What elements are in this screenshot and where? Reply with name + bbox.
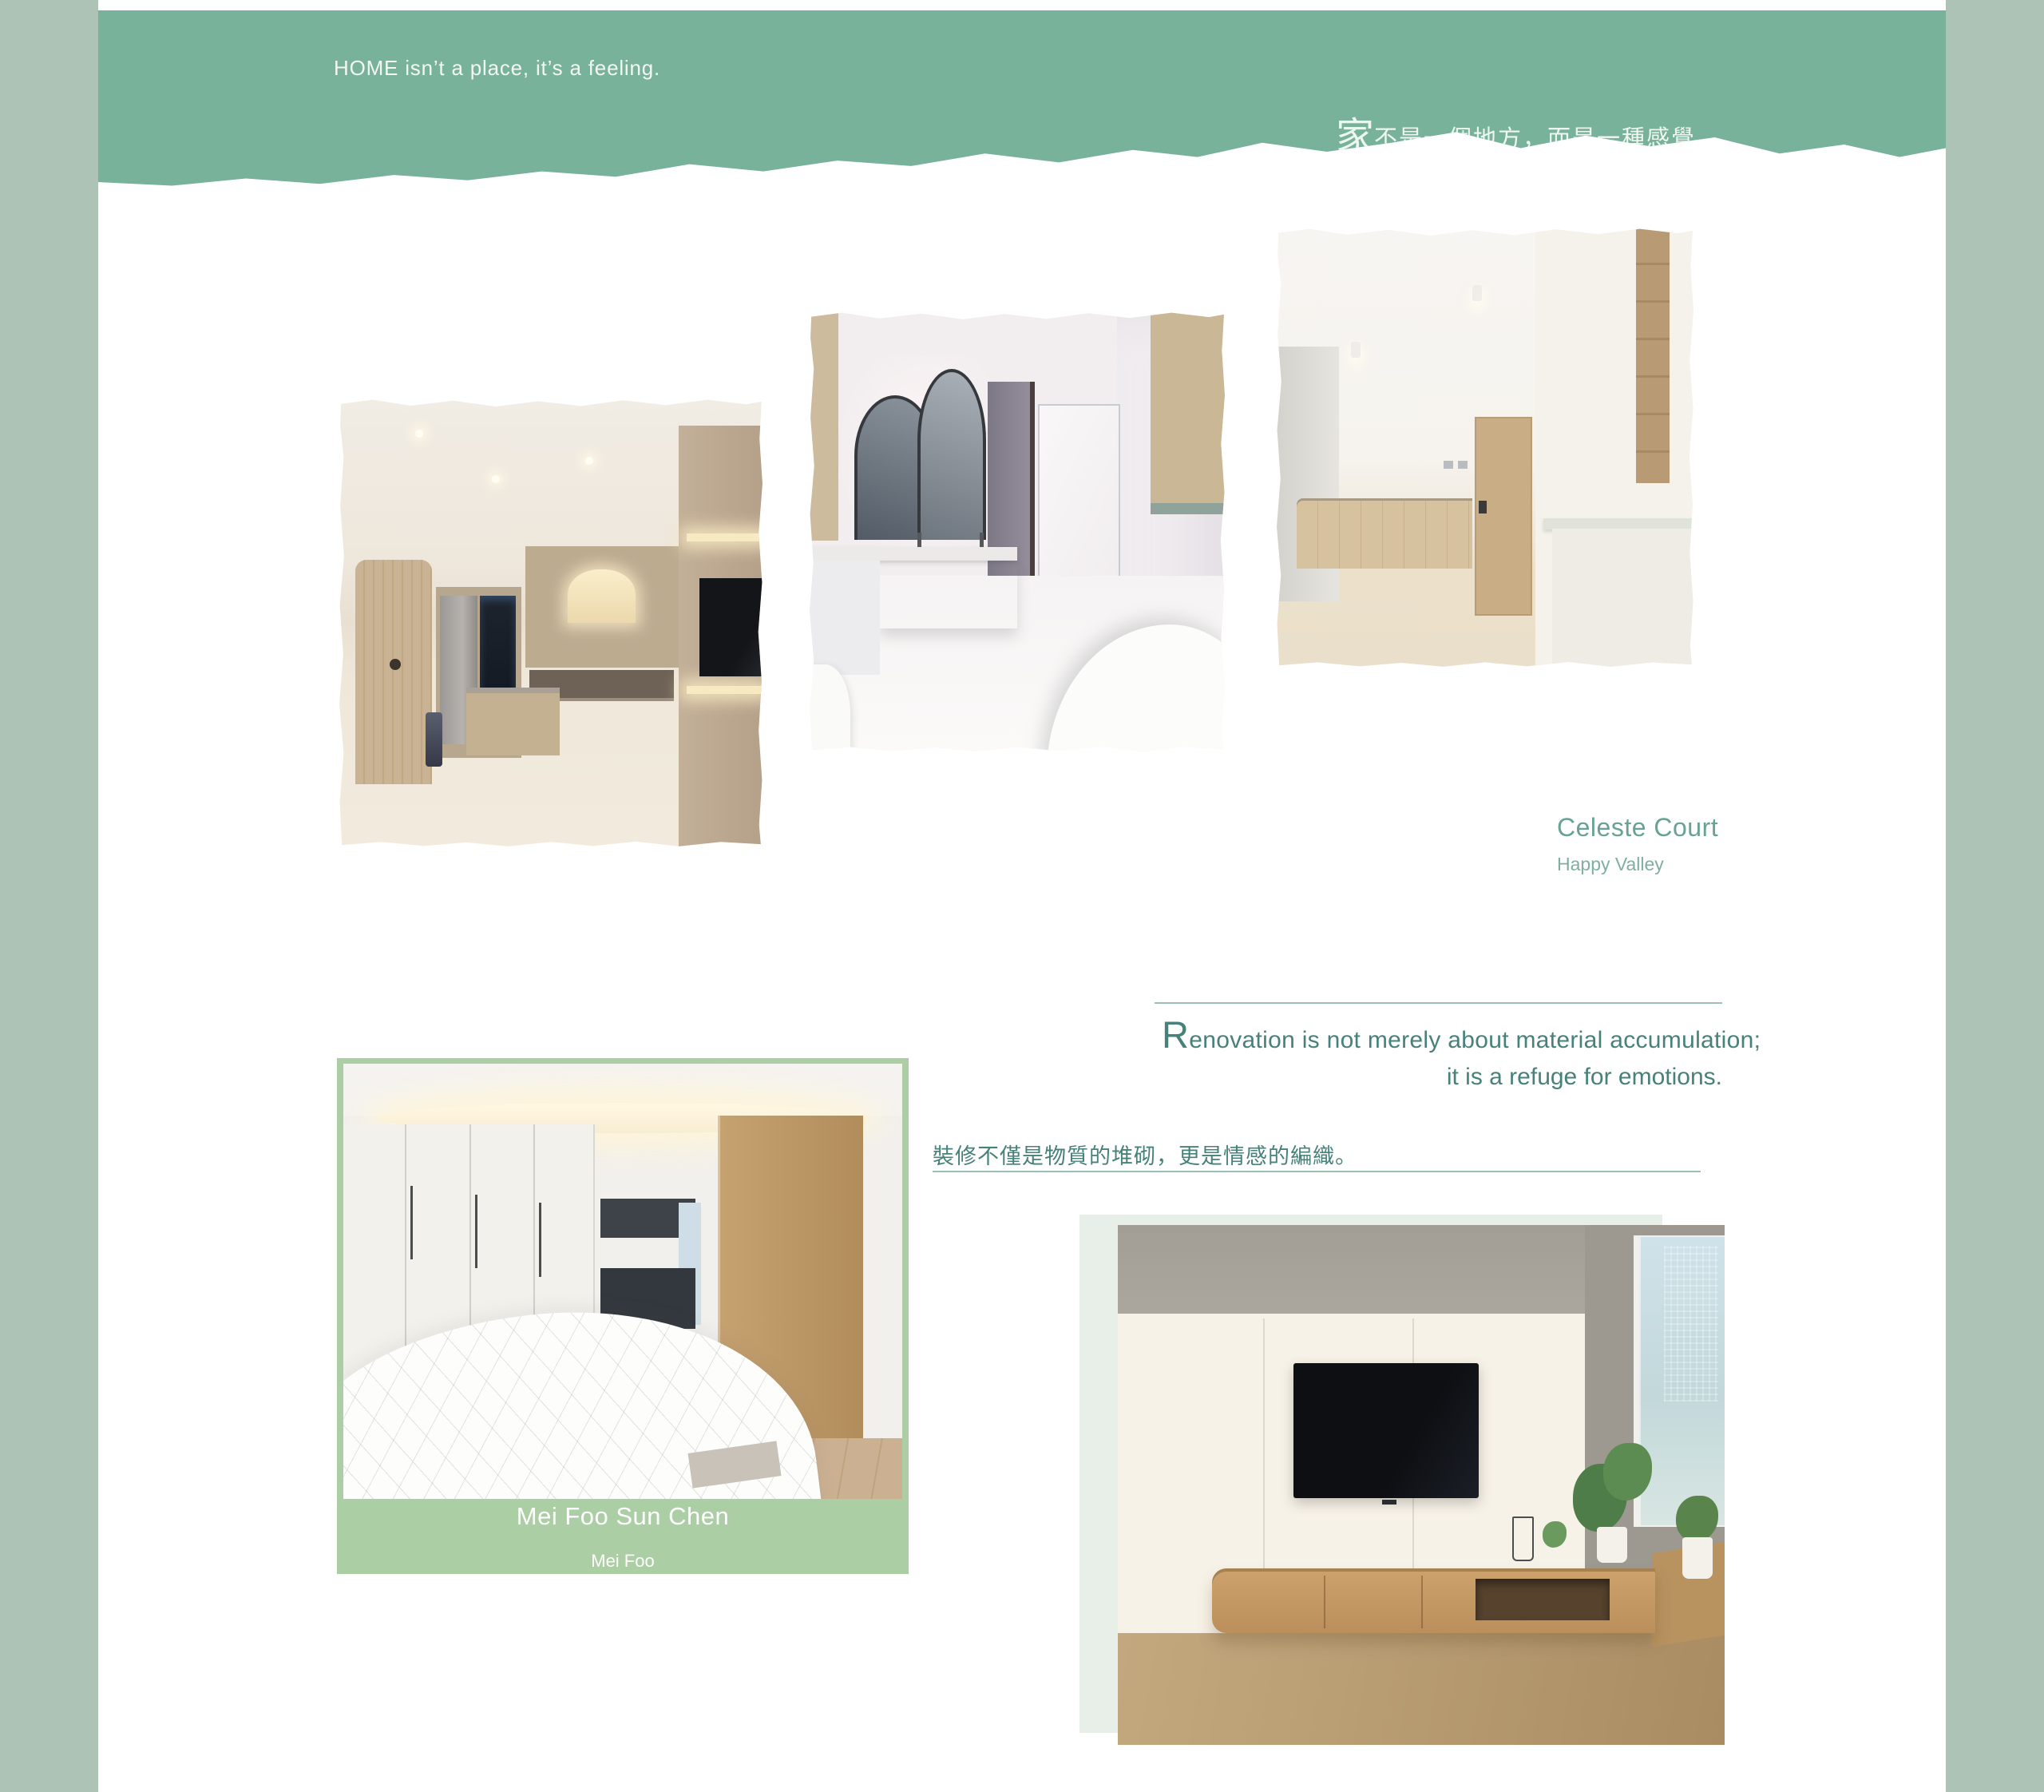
wall-seam [1263, 1318, 1265, 1568]
quote-en-line1: Renovation is not merely about material … [1162, 1013, 1722, 1057]
arch-mirror [917, 369, 986, 540]
smart-lock [1479, 501, 1487, 513]
photo-celeste-bathroom[interactable] [809, 311, 1226, 752]
quote-en-line2: it is a refuge for emotions. [1162, 1064, 1722, 1091]
hero-quote-zh: 家不是一個地方，而是一種感覺。 [1336, 105, 1721, 161]
lower-cabinet [1552, 529, 1694, 668]
right-margin-strip [1946, 0, 2044, 1792]
portfolio-page: HOME isn’t a place, it’s a feeling. 家不是一… [0, 0, 2044, 1792]
wood-floor [1118, 1633, 1725, 1745]
window-mesh [1664, 1246, 1718, 1401]
project-name[interactable]: Mei Foo Sun Chen [337, 1502, 909, 1531]
vanity-drawers [880, 563, 1017, 629]
counter-top [1543, 518, 1694, 529]
ceiling-spotlight [492, 475, 500, 483]
wood-column [809, 311, 838, 541]
tv-screen [1293, 1363, 1479, 1498]
photo-meifoo-tv-wall[interactable] [1118, 1225, 1725, 1745]
wall-switch [1458, 461, 1468, 469]
hero-quote-zh-rest: 不是一個地方，而是一種感覺。 [1374, 126, 1721, 152]
ceiling-spotlight [415, 430, 423, 438]
photo-meifoo-bedroom [343, 1064, 902, 1499]
left-margin-strip [0, 0, 98, 1792]
air-purifier [426, 712, 442, 766]
wood-wardrobe [355, 560, 432, 784]
project-name[interactable]: Celeste Court [1557, 813, 1718, 842]
quote-drop-cap: R [1162, 1013, 1189, 1056]
wood-cabinet [1151, 311, 1226, 514]
drawer-seam [1324, 1576, 1325, 1627]
quote-en-line1-rest: enovation is not merely about material a… [1189, 1027, 1761, 1053]
divider-line-bottom [933, 1171, 1701, 1172]
faucet [980, 533, 984, 547]
low-wood-cabinets [1297, 498, 1472, 569]
ceiling-spotlight [1472, 285, 1482, 301]
wardrobe-handle [539, 1203, 541, 1277]
project-location: Happy Valley [1557, 854, 1718, 875]
quote-zh: 裝修不僅是物質的堆砌，更是情感的編織。 [933, 1139, 1357, 1170]
marble-panel [809, 561, 880, 676]
project-card-meifoo[interactable]: Mei Foo Sun Chen Mei Foo [337, 1058, 909, 1574]
tv-mount [1382, 1500, 1396, 1505]
wood-shelf-column [1636, 228, 1670, 483]
wall-switch [1444, 461, 1453, 469]
backlit-shelf [687, 533, 763, 541]
wardrobe-handle [475, 1195, 477, 1269]
door-knob [390, 659, 401, 670]
tv-screen [699, 578, 763, 677]
project-location: Mei Foo [337, 1551, 909, 1572]
backlit-arch-niche [568, 569, 636, 623]
plant-pot [1682, 1537, 1713, 1579]
console-open-shelf [1476, 1579, 1609, 1620]
vanity-counter [809, 547, 1017, 561]
entry-door [1475, 417, 1532, 616]
divider-line-top [1155, 1002, 1722, 1004]
drawer-seam [1421, 1576, 1423, 1627]
backlit-shelf [687, 686, 763, 694]
plant-pot [1597, 1527, 1627, 1564]
wardrobe-handle [410, 1186, 413, 1260]
project-caption-celeste: Celeste Court Happy Valley [1557, 813, 1718, 875]
ceiling-spotlight [585, 457, 593, 465]
hero-banner: HOME isn’t a place, it’s a feeling. 家不是一… [98, 10, 1946, 189]
photo-celeste-kitchen[interactable] [339, 398, 763, 847]
photo-celeste-living[interactable] [1276, 228, 1694, 668]
hero-quote-en: HOME isn’t a place, it’s a feeling. [334, 56, 660, 81]
faucet [917, 533, 921, 547]
hero-quote-zh-lead: 家 [1336, 116, 1374, 158]
lower-cabinets [525, 701, 679, 755]
wire-vase [1512, 1516, 1534, 1561]
ceiling-spotlight [1351, 342, 1361, 358]
